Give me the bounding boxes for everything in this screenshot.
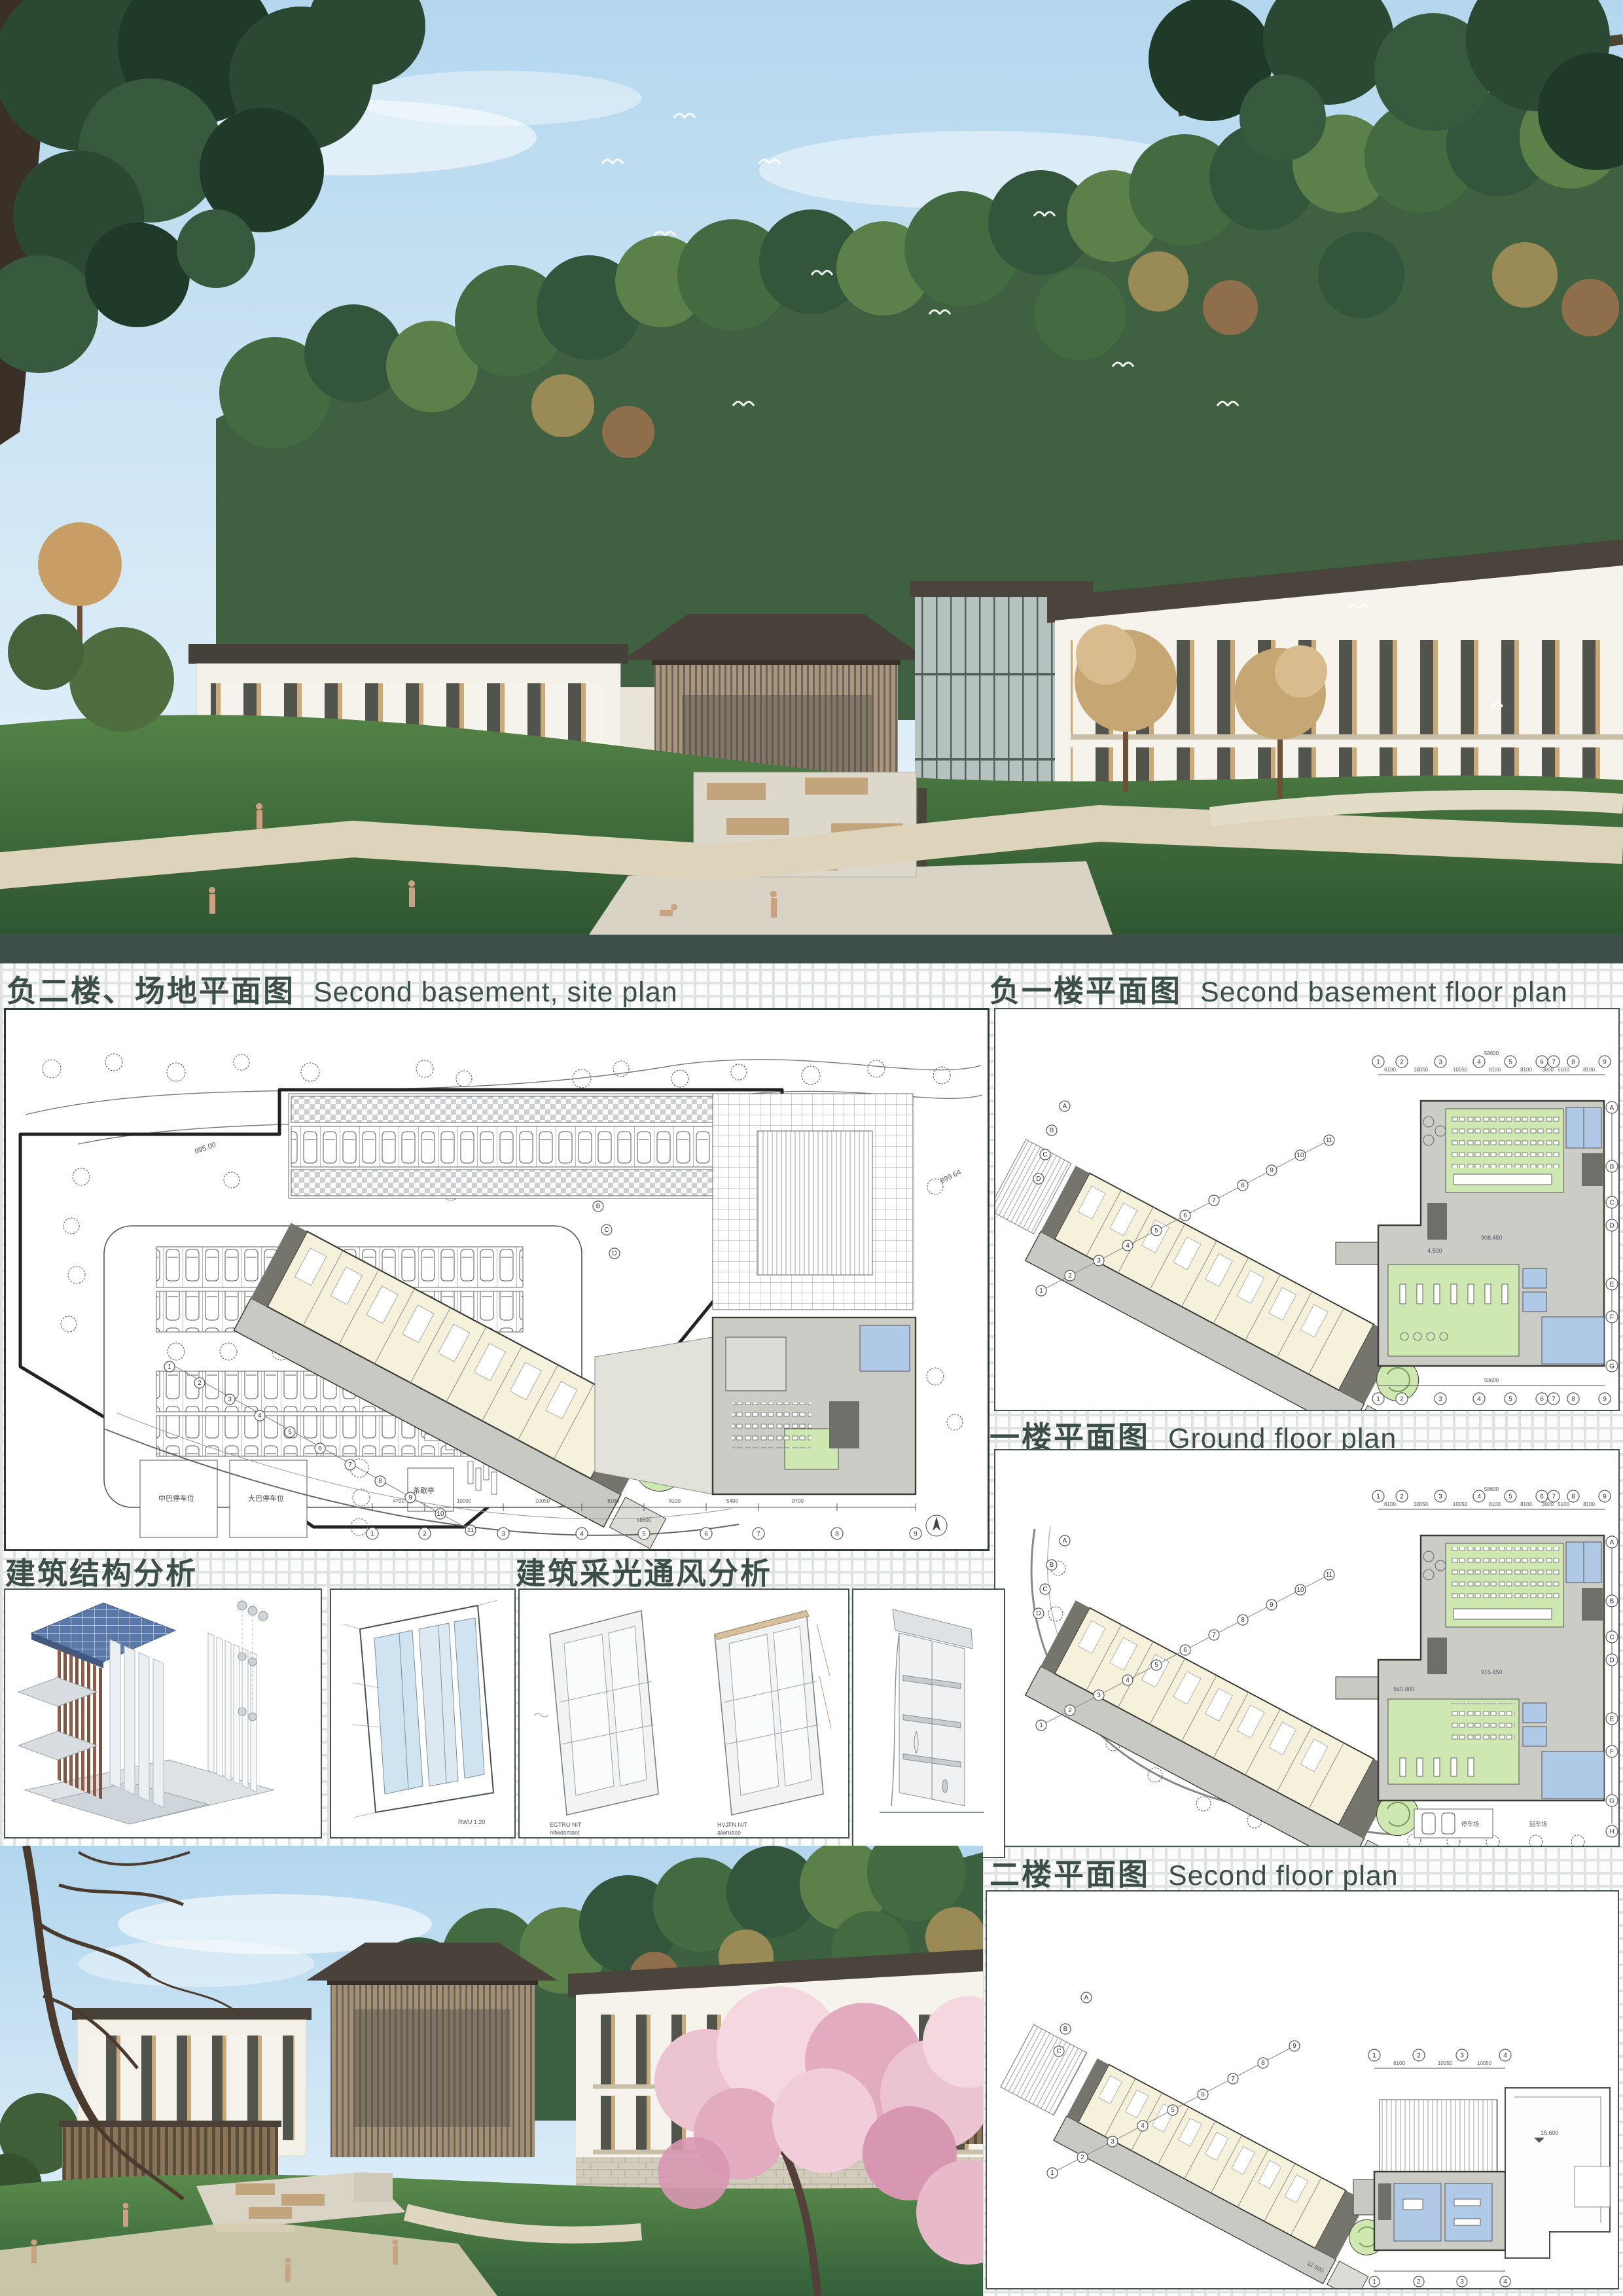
svg-text:A: A (1610, 1105, 1614, 1112)
svg-text:58600: 58600 (1484, 1050, 1499, 1056)
title-site-cn: 负二楼、场地平面图 (7, 967, 295, 1011)
svg-text:8: 8 (1261, 2060, 1265, 2067)
svg-text:C: C (1609, 1200, 1614, 1207)
svg-text:8100: 8100 (1489, 1067, 1501, 1073)
svg-text:9: 9 (1603, 1059, 1607, 1066)
svg-text:945.000: 945.000 (1393, 1686, 1415, 1693)
facade-detail-drawing: RWU 1:20 (331, 1590, 514, 1837)
svg-text:alwruaso: alwruaso (717, 1829, 741, 1836)
svg-text:大巴停车位: 大巴停车位 (248, 1494, 284, 1503)
svg-text:2: 2 (1400, 1396, 1404, 1403)
guestroom-wing (995, 1139, 1437, 1410)
daylight-detail-drawing: EGTRU NIT nifwdsmant HVJFN NIT alwruaso (520, 1590, 848, 1837)
svg-text:D: D (1036, 1610, 1041, 1617)
svg-text:7: 7 (1231, 2075, 1235, 2083)
svg-text:10: 10 (1296, 1587, 1304, 1594)
svg-text:2: 2 (1080, 2154, 1084, 2161)
svg-text:2: 2 (198, 1380, 202, 1387)
guestroom-wing: 12.600 (990, 2024, 1399, 2288)
title-structure-analysis: 建筑结构分析 (5, 1550, 198, 1593)
svg-text:1: 1 (1039, 1722, 1043, 1729)
title-structure-cn: 建筑结构分析 (5, 1550, 198, 1593)
svg-text:7: 7 (348, 1462, 352, 1469)
north-arrow (926, 1515, 947, 1536)
window-axon: RWU 1:20 (343, 1600, 497, 1825)
svg-text:8100: 8100 (1520, 1067, 1532, 1073)
svg-text:F: F (1610, 1749, 1614, 1756)
svg-text:6: 6 (1540, 1059, 1544, 1066)
svg-text:6100: 6100 (1384, 1067, 1396, 1073)
svg-text:10050: 10050 (1453, 1501, 1468, 1507)
svg-text:3000: 3000 (1542, 1067, 1554, 1073)
main-block: 908.450 4.500 (1378, 1101, 1604, 1366)
svg-text:8100: 8100 (669, 1498, 681, 1504)
svg-text:8: 8 (835, 1531, 839, 1538)
svg-text:2: 2 (1068, 1707, 1072, 1714)
svg-text:H: H (1609, 1829, 1614, 1836)
second-floor-plan-panel: 12.600 15.600 6100 10050 (986, 1890, 1619, 2289)
svg-text:RWU 1:20: RWU 1:20 (458, 1819, 485, 1825)
svg-text:6100: 6100 (1393, 2060, 1405, 2066)
svg-text:B: B (1050, 1562, 1054, 1569)
b1-floor-plan-drawing: 908.450 4.500 6100 10050 10050 8100 8100… (995, 1009, 1618, 1410)
section-perspective-drawing (853, 1590, 1004, 1857)
link-corridor (1336, 1677, 1384, 1699)
svg-text:5: 5 (1171, 2107, 1175, 2114)
svg-text:8100: 8100 (1583, 1501, 1595, 1507)
building-pavilion (306, 1943, 558, 2157)
svg-text:10050: 10050 (1477, 2060, 1492, 2066)
svg-text:C: C (1043, 1151, 1047, 1158)
svg-text:8100: 8100 (1583, 1067, 1595, 1073)
svg-text:2: 2 (1068, 1272, 1072, 1280)
svg-text:15.600: 15.600 (1541, 2130, 1559, 2136)
svg-text:D: D (1609, 1657, 1614, 1664)
svg-text:5: 5 (1508, 1494, 1512, 1501)
svg-text:3: 3 (501, 1531, 505, 1538)
svg-text:HVJFN NIT: HVJFN NIT (717, 1821, 748, 1828)
svg-text:11: 11 (1326, 1137, 1333, 1144)
title-second-en: Second floor plan (1168, 1860, 1399, 1892)
svg-text:58600: 58600 (637, 1517, 652, 1523)
annex-block (595, 1318, 963, 1494)
svg-text:3: 3 (1438, 1059, 1442, 1066)
title-b1-cn: 负一楼平面图 (990, 967, 1182, 1011)
svg-text:中巴停车位: 中巴停车位 (158, 1494, 194, 1503)
svg-text:6: 6 (1540, 1396, 1544, 1403)
svg-text:8: 8 (1241, 1182, 1245, 1189)
svg-text:nifwdsmant: nifwdsmant (550, 1829, 580, 1836)
svg-text:3: 3 (1438, 1396, 1442, 1403)
svg-text:5: 5 (1154, 1227, 1158, 1234)
svg-text:908.450: 908.450 (1481, 1234, 1503, 1241)
svg-text:9: 9 (1270, 1167, 1274, 1174)
svg-text:1: 1 (1039, 1287, 1043, 1295)
fin-screens (208, 1633, 257, 1792)
svg-text:C: C (604, 1227, 609, 1234)
svg-text:1: 1 (1376, 1396, 1380, 1403)
svg-text:D: D (1036, 1175, 1041, 1183)
svg-text:G: G (1609, 1798, 1614, 1805)
title-daylight-analysis: 建筑采光通风分析 (516, 1550, 772, 1593)
exploded-axon (18, 1601, 274, 1824)
svg-text:8: 8 (1571, 1059, 1575, 1066)
svg-text:1: 1 (1376, 1059, 1380, 1066)
svg-text:6: 6 (1201, 2091, 1205, 2098)
svg-text:3: 3 (1460, 2278, 1464, 2286)
svg-text:3: 3 (1438, 1494, 1442, 1501)
svg-text:B: B (1063, 2026, 1068, 2033)
hero-top-scene (0, 0, 1623, 935)
svg-text:3: 3 (228, 1396, 232, 1403)
site-plan-panel: 902.07 901.92 897.23 900.63 899.64 895.0… (4, 1008, 990, 1551)
svg-text:5: 5 (1508, 1396, 1512, 1403)
hero-rendering-top (0, 0, 1623, 935)
svg-text:10050: 10050 (535, 1498, 550, 1504)
parking-strip-top (289, 1094, 773, 1198)
svg-text:B: B (1050, 1127, 1054, 1134)
svg-text:895.00: 895.00 (194, 1141, 217, 1156)
svg-text:2: 2 (423, 1531, 427, 1538)
parking-and-turn: 停车场 回车场 (1414, 1809, 1547, 1838)
svg-text:2: 2 (1400, 1059, 1404, 1066)
title-second-plan: 二楼平面图 Second floor plan (990, 1851, 1399, 1894)
svg-text:7: 7 (1552, 1396, 1556, 1403)
site-plan-drawing: 902.07 901.92 897.23 900.63 899.64 895.0… (6, 1010, 988, 1549)
svg-text:9: 9 (1603, 1396, 1607, 1403)
svg-text:4: 4 (1141, 2123, 1145, 2130)
svg-text:5100: 5100 (1558, 1501, 1569, 1507)
axis-top: 6100 10050 10050 8100 8100 3000 5100 810… (1372, 1486, 1611, 1509)
svg-text:E: E (1610, 1716, 1614, 1723)
svg-text:F: F (1610, 1314, 1614, 1321)
structure-axon-panel (4, 1588, 322, 1839)
timber-louvers (58, 1649, 102, 1799)
svg-text:6: 6 (704, 1531, 708, 1538)
svg-text:8: 8 (1241, 1617, 1245, 1624)
svg-text:C: C (1056, 2048, 1061, 2055)
svg-text:899.64: 899.64 (939, 1168, 963, 1185)
ground-floor-plan-drawing: 健身器材场地 网球场 (995, 1450, 1618, 1846)
title-b1-plan: 负一楼平面图 Second basement floor plan (990, 967, 1567, 1011)
svg-text:2: 2 (1417, 2053, 1421, 2060)
trellis-deck (713, 1094, 913, 1310)
svg-text:1: 1 (1372, 2053, 1376, 2060)
svg-text:3: 3 (1097, 1692, 1101, 1699)
link-corridor (1336, 1242, 1384, 1265)
b1-floor-plan-panel: 908.450 4.500 6100 10050 10050 8100 8100… (994, 1008, 1620, 1411)
svg-text:4: 4 (1126, 1677, 1130, 1684)
svg-text:10050: 10050 (1414, 1501, 1429, 1507)
svg-text:4: 4 (1477, 1494, 1481, 1501)
svg-text:4700: 4700 (393, 1498, 404, 1504)
svg-text:B: B (1610, 1164, 1614, 1171)
section-perspective-panel (852, 1588, 1005, 1858)
svg-text:10050: 10050 (1453, 1067, 1468, 1073)
title-b1-en: Second basement floor plan (1200, 977, 1567, 1009)
svg-text:3: 3 (1097, 1257, 1101, 1265)
svg-text:6: 6 (1183, 1647, 1187, 1654)
second-floor-plan-drawing: 12.600 15.600 6100 10050 (987, 1892, 1618, 2288)
axis-bottom: 1 2 3 4 (1369, 2271, 1510, 2287)
svg-text:C: C (1043, 1586, 1047, 1593)
hero-bottom-scene (0, 1846, 983, 2296)
svg-text:回车场: 回车场 (1529, 1820, 1547, 1827)
svg-text:A: A (1063, 1103, 1067, 1110)
svg-text:2: 2 (1400, 1494, 1404, 1501)
svg-text:7: 7 (1552, 1059, 1556, 1066)
main-block: 915.450 945.000 (1378, 1535, 1604, 1801)
svg-text:915.450: 915.450 (1481, 1669, 1503, 1676)
hero-rendering-bottom (0, 1846, 983, 2296)
svg-text:6: 6 (318, 1445, 322, 1452)
svg-text:4.500: 4.500 (1427, 1247, 1442, 1254)
svg-text:58600: 58600 (1484, 1486, 1499, 1492)
svg-text:9: 9 (1293, 2043, 1296, 2050)
svg-text:10000: 10000 (457, 1498, 472, 1504)
svg-text:10050: 10050 (1414, 1067, 1429, 1073)
svg-text:5400: 5400 (726, 1498, 738, 1504)
svg-text:9: 9 (914, 1531, 918, 1538)
svg-text:E: E (1610, 1282, 1614, 1289)
svg-text:11: 11 (467, 1527, 474, 1534)
title-site-plan: 负二楼、场地平面图 Second basement, site plan (7, 967, 678, 1011)
svg-text:1: 1 (1376, 1494, 1380, 1501)
svg-text:3: 3 (1460, 2053, 1464, 2060)
svg-text:7: 7 (757, 1531, 760, 1538)
svg-text:B: B (1610, 1598, 1614, 1605)
svg-text:8: 8 (378, 1478, 382, 1485)
title-site-en: Second basement, site plan (313, 977, 678, 1009)
svg-text:8100: 8100 (1489, 1501, 1501, 1507)
axis-right-letters: A B C D E F G H (1606, 1535, 1618, 1837)
svg-text:A: A (1610, 1539, 1614, 1547)
svg-text:3000: 3000 (1542, 1501, 1554, 1507)
svg-text:5: 5 (288, 1429, 292, 1436)
ground-floor-plan-panel: 健身器材场地 网球场 (994, 1449, 1620, 1847)
svg-text:8: 8 (1571, 1494, 1575, 1501)
building-left (59, 2008, 312, 2186)
svg-text:1: 1 (1050, 2170, 1054, 2177)
svg-text:1: 1 (168, 1363, 171, 1371)
svg-text:4: 4 (258, 1412, 262, 1420)
svg-text:4: 4 (1126, 1242, 1130, 1249)
daylight-detail-panel: EGTRU NIT nifwdsmant HVJFN NIT alwruaso (518, 1588, 849, 1839)
facade-detail-panel: RWU 1:20 (330, 1588, 516, 1839)
svg-text:4: 4 (580, 1531, 584, 1538)
svg-text:4: 4 (1477, 1059, 1481, 1066)
roof-deck (1374, 2100, 1505, 2250)
main-roof-outline: 15.600 (1505, 2088, 1610, 2258)
svg-text:8: 8 (1571, 1396, 1575, 1403)
svg-text:58600: 58600 (1484, 1378, 1499, 1384)
svg-text:10050: 10050 (1438, 2060, 1453, 2066)
svg-text:9700: 9700 (792, 1498, 804, 1504)
svg-text:11: 11 (1326, 1571, 1333, 1579)
svg-text:4: 4 (1503, 2053, 1507, 2060)
svg-text:C: C (1609, 1634, 1614, 1641)
svg-text:A: A (1084, 1994, 1089, 2001)
svg-text:6: 6 (1540, 1494, 1544, 1501)
svg-text:3: 3 (1111, 2138, 1115, 2145)
frame-axon-2: HVJFN NIT alwruaso (715, 1611, 831, 1836)
presentation-board: 负二楼、场地平面图 Second basement, site plan 负一楼… (0, 0, 1623, 2296)
svg-text:1: 1 (1372, 2278, 1376, 2286)
svg-text:4: 4 (1503, 2278, 1507, 2286)
divider-band (0, 935, 1623, 963)
svg-text:停车场: 停车场 (1461, 1820, 1479, 1827)
svg-text:4: 4 (1477, 1396, 1481, 1403)
svg-text:茶歇亭: 茶歇亭 (413, 1486, 435, 1495)
section-lines (880, 1609, 984, 1812)
svg-text:8100: 8100 (607, 1498, 619, 1504)
svg-text:2: 2 (1417, 2278, 1421, 2286)
svg-text:5: 5 (1508, 1059, 1512, 1066)
svg-text:D: D (1609, 1223, 1614, 1230)
frame-axon-1: EGTRU NIT nifwdsmant (534, 1611, 658, 1836)
svg-text:9: 9 (408, 1494, 412, 1501)
svg-text:6100: 6100 (1384, 1501, 1396, 1507)
svg-text:7: 7 (1212, 1197, 1216, 1204)
axis-right-letters: A B C D E F G (1606, 1101, 1618, 1372)
svg-text:5: 5 (1154, 1662, 1158, 1669)
svg-text:10: 10 (1296, 1152, 1304, 1159)
svg-text:D: D (612, 1250, 616, 1257)
svg-text:A: A (1063, 1537, 1067, 1545)
svg-text:8100: 8100 (1520, 1501, 1532, 1507)
svg-text:B: B (596, 1203, 601, 1210)
svg-text:7: 7 (1552, 1494, 1556, 1501)
svg-text:1: 1 (370, 1531, 374, 1538)
svg-text:EGTRU NIT: EGTRU NIT (550, 1821, 582, 1828)
svg-text:5: 5 (642, 1531, 646, 1538)
svg-text:5100: 5100 (1558, 1067, 1569, 1073)
structure-axon-drawing (5, 1590, 321, 1837)
svg-text:G: G (1609, 1363, 1614, 1371)
guestroom-wing (1026, 1600, 1438, 1846)
svg-text:10: 10 (437, 1511, 444, 1518)
svg-text:7: 7 (1212, 1632, 1216, 1639)
axis-top: 6100 10050 10050 8100 8100 3000 5100 810… (1372, 1050, 1611, 1075)
svg-text:9: 9 (1270, 1602, 1274, 1609)
svg-text:6: 6 (1183, 1212, 1187, 1219)
title-second-cn: 二楼平面图 (990, 1851, 1150, 1894)
axis-top: 6100 10050 10050 1 2 3 4 (1368, 2049, 1511, 2068)
title-daylight-cn: 建筑采光通风分析 (516, 1550, 772, 1593)
svg-text:9: 9 (1603, 1494, 1607, 1501)
